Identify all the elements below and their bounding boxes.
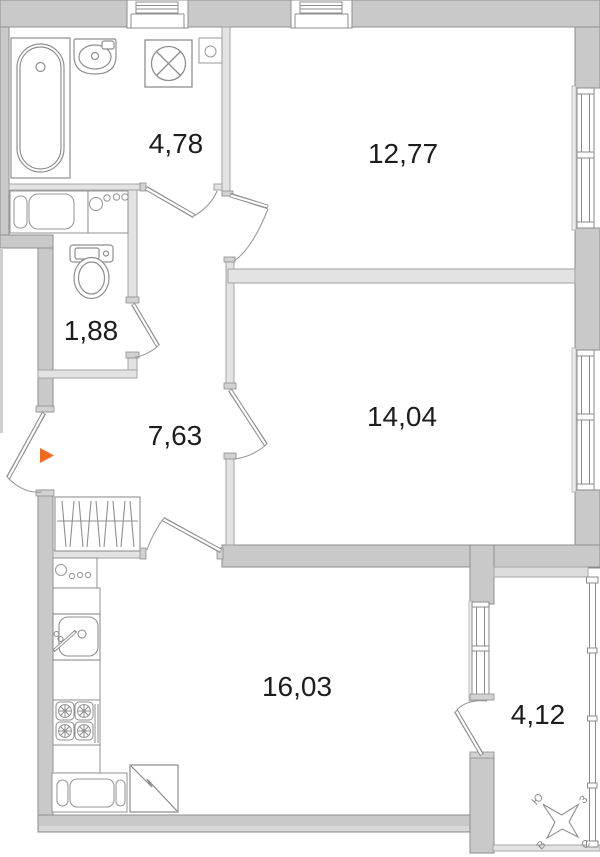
floor-plan: Ю З В С 4,78 12,77 1,88 7,63 14,04 16,03… [0, 0, 600, 857]
door-kitchen-icon [140, 519, 223, 559]
balcony-glazing-icon [587, 577, 599, 847]
door-bathroom-icon [140, 183, 217, 216]
laundry-counter-icon [10, 191, 88, 233]
radiator-counter-icon [52, 773, 127, 812]
vent-icon [199, 38, 222, 63]
vent-shaft-icon [291, 0, 352, 28]
door-wc-icon [126, 297, 158, 358]
wardrobe-icon [55, 497, 140, 551]
door-entrance-icon [8, 406, 54, 496]
entry-arrow-icon [40, 448, 54, 463]
washing-machine-icon [145, 40, 192, 87]
room-label-balcony: 4,12 [511, 699, 566, 730]
door-bedroom-top-icon [222, 191, 268, 262]
room-label-wc: 1,88 [64, 315, 119, 346]
compass-west-label: З [577, 793, 591, 806]
fridge-icon [130, 765, 178, 812]
bathtub-icon [11, 38, 70, 178]
knobs-counter-icon [88, 191, 128, 233]
window-bedroom-right-icon [572, 348, 594, 492]
room-label-bedroom-top: 12,77 [368, 138, 438, 169]
window-bedroom-top-icon [572, 86, 594, 230]
room-label-kitchen: 16,03 [262, 671, 332, 702]
washbasin-icon [74, 39, 116, 74]
vent-shaft-icon [127, 0, 188, 28]
toilet-icon [70, 245, 113, 299]
window-kitchen-balcony-icon [469, 601, 489, 701]
floor-plan-svg: Ю З В С 4,78 12,77 1,88 7,63 14,04 16,03… [0, 0, 600, 857]
stove-icon [53, 700, 100, 745]
room-label-bathroom: 4,78 [149, 128, 204, 159]
room-label-bedroom-right: 14,04 [367, 401, 437, 432]
compass-icon: Ю З В С [510, 770, 600, 857]
kitchen-sink-icon [53, 614, 100, 660]
door-bedroom-right-icon [224, 383, 266, 459]
room-label-hallway: 7,63 [148, 420, 203, 451]
door-balcony-icon [456, 694, 494, 758]
